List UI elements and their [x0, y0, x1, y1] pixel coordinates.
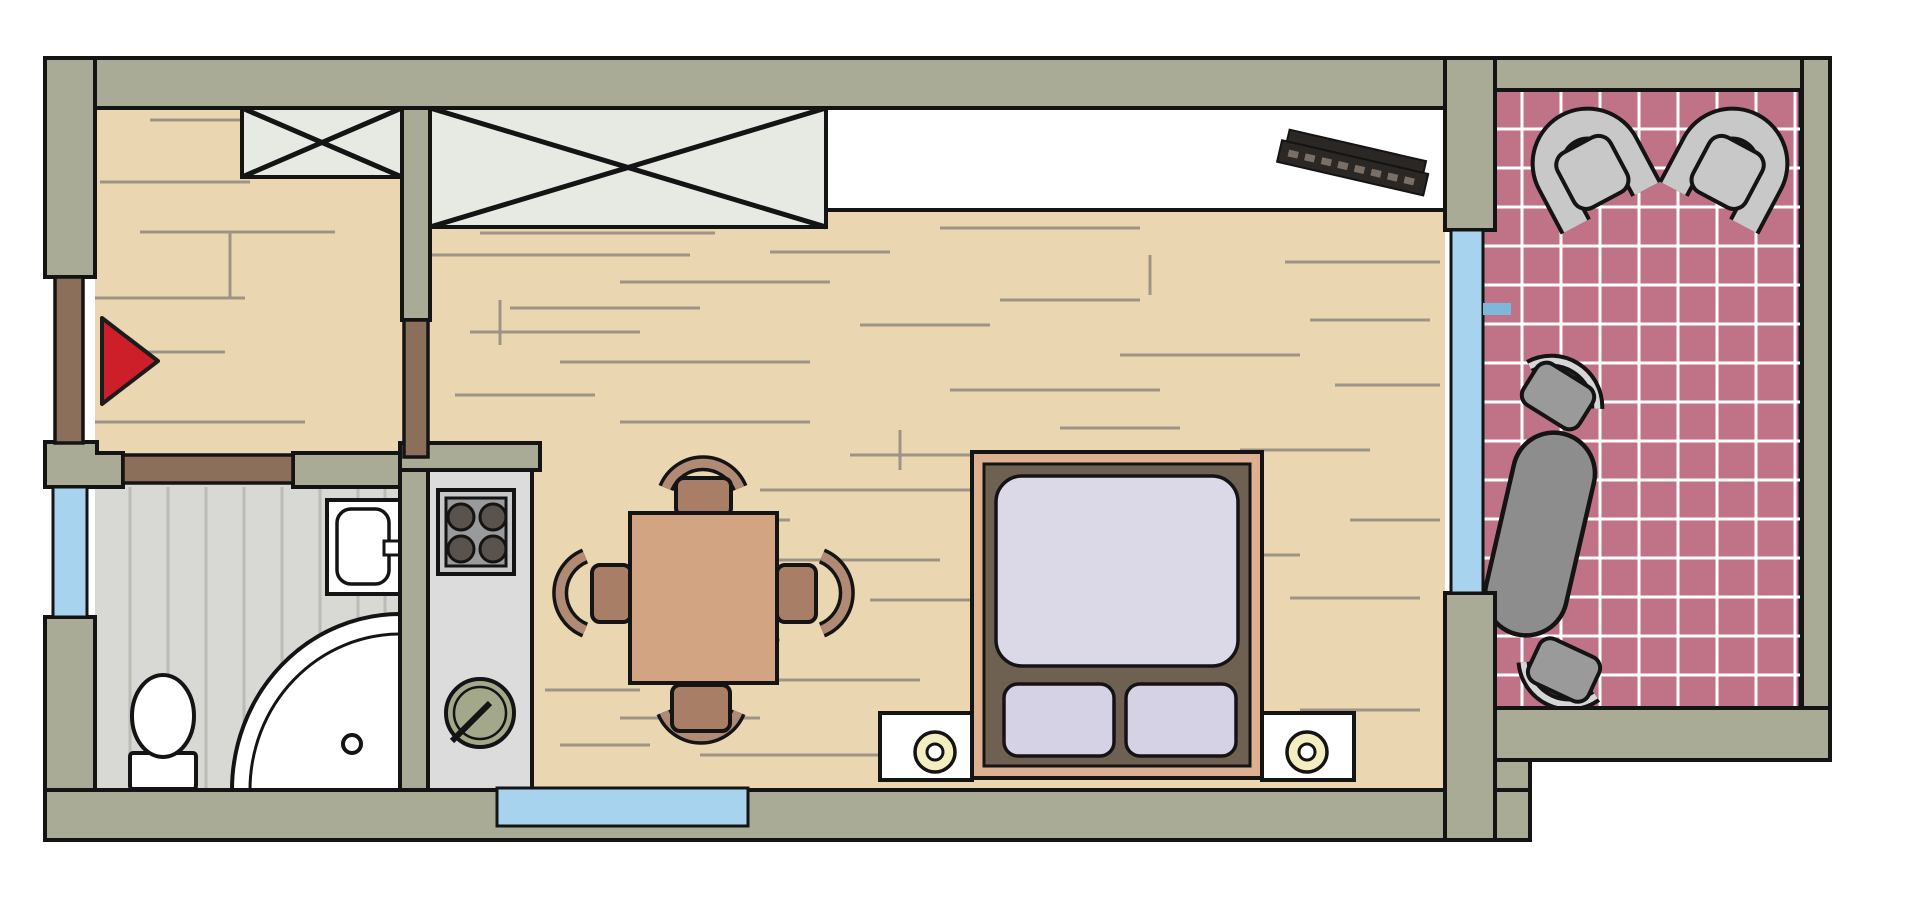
bathroom-window [53, 487, 87, 617]
entry-door [55, 277, 83, 443]
balcony-wall-right [1802, 58, 1830, 760]
hall-room-door [404, 320, 428, 457]
burner-icon [448, 504, 474, 530]
kitchen-sink [446, 679, 514, 747]
balcony-glass-door [1451, 230, 1483, 593]
mattress [996, 476, 1238, 666]
wall-step [1495, 760, 1530, 792]
wall-hall-partition [402, 108, 430, 320]
nightstand-right [1262, 713, 1354, 780]
wall-left-lower [45, 617, 95, 790]
balcony-wall-top [1495, 58, 1830, 90]
toilet-bowl [132, 675, 194, 757]
washbasin [327, 500, 404, 594]
dining-chair [676, 478, 731, 516]
toilet [130, 675, 196, 789]
floor-plan-page [0, 0, 1920, 913]
burner-icon [448, 536, 474, 562]
pillow [1126, 684, 1236, 756]
stove [438, 490, 514, 574]
dining-table [630, 513, 777, 683]
wardrobe-small [242, 108, 402, 177]
shower-drain-icon [343, 735, 361, 753]
built-in-closet [826, 108, 1445, 210]
wall-hall-bath-right [293, 453, 402, 487]
bathroom-door [123, 455, 293, 483]
wall-bottom [45, 790, 1530, 840]
balcony-door-handle-icon [1483, 303, 1511, 315]
wall-top [45, 58, 1495, 108]
burner-icon [480, 536, 506, 562]
nightstand-left [880, 713, 972, 780]
burner-icon [480, 504, 506, 530]
dining-chair [777, 565, 816, 622]
wall-right-lower [1445, 593, 1495, 840]
floor-plan [0, 0, 1920, 913]
wardrobe-large [430, 108, 826, 227]
wall-left-upper [45, 58, 95, 277]
kitchen-counter [428, 470, 532, 790]
wall-bath-kitchen [400, 470, 428, 790]
dining-chair [592, 565, 631, 622]
balcony-wall-bottom [1447, 708, 1830, 760]
double-bed [972, 452, 1262, 778]
pillow [1004, 684, 1114, 756]
dining-chair [672, 685, 730, 731]
wall-right-upper [1445, 58, 1495, 230]
bottom-window [497, 788, 748, 826]
